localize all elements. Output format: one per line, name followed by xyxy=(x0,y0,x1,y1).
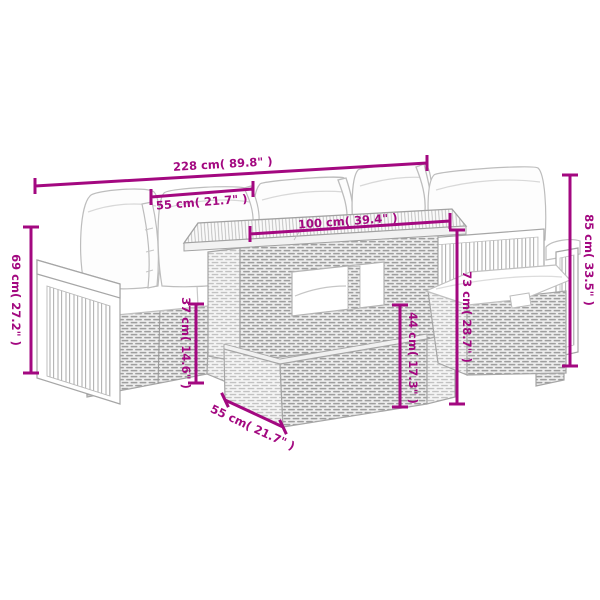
ottoman-line-art xyxy=(426,265,570,375)
dim-seat-height-label: 37 cm( 14.6" ) xyxy=(179,297,193,389)
dim-total-width-label: 228 cm( 89.8" ) xyxy=(173,154,273,174)
dim-table-height-label: 73 cm( 28.7" ) xyxy=(460,271,474,363)
dim-table-base-height-label: 44 cm( 17.3" ) xyxy=(406,312,420,404)
product-dimension-diagram: 228 cm( 89.8" ) 55 cm( 21.7" ) 100 cm( 3… xyxy=(0,0,600,600)
table-line-art xyxy=(184,209,466,427)
furniture-line-art: 228 cm( 89.8" ) 55 cm( 21.7" ) 100 cm( 3… xyxy=(0,0,600,600)
dim-armrest-height-label: 69 cm( 27.2" ) xyxy=(9,254,23,346)
dim-overall-height-label: 85 cm( 33.5" ) xyxy=(582,214,596,306)
